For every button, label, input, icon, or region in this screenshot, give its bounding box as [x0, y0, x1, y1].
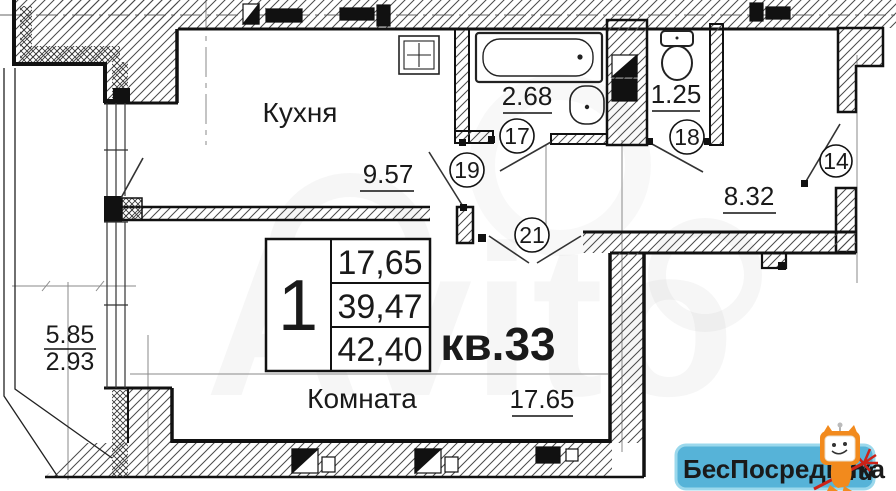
- marker: [766, 7, 790, 19]
- room-label: Комната: [307, 383, 417, 414]
- marker: [340, 8, 374, 20]
- wall-room-left: [128, 388, 172, 443]
- summary-table: 1 17,65 39,47 42,40: [266, 239, 430, 371]
- marker: [536, 447, 578, 463]
- wc-dim: 1.25: [651, 79, 702, 109]
- hall-dim: 8.32: [724, 181, 775, 211]
- kitchen-window: [104, 103, 128, 196]
- wall-bathroom-left: [455, 29, 469, 143]
- marker: [612, 55, 637, 77]
- door-tag-14: 14: [823, 148, 849, 174]
- door-tag-17: 17: [504, 123, 530, 149]
- floor-plan: Avito: [0, 0, 896, 491]
- wall-room-right: [610, 253, 644, 443]
- wall-hall-bottom: [583, 232, 856, 253]
- marker: [377, 5, 390, 26]
- marker: [750, 3, 763, 21]
- balcony-dim-length: 5.85: [46, 321, 95, 349]
- wall-kitchen-room-divider: [122, 207, 430, 220]
- marker: [266, 9, 302, 22]
- summary-total-area: 42,40: [337, 331, 422, 369]
- marker: [243, 4, 259, 24]
- windows: [104, 103, 128, 388]
- summary-subtotal-area: 39,47: [337, 288, 422, 326]
- bathroom-dim: 2.68: [502, 81, 553, 111]
- kitchen-dim: 9.57: [363, 159, 414, 189]
- wall-step-block: [457, 207, 473, 243]
- balcony-dim-width: 2.93: [46, 348, 95, 376]
- floor-plan-screenshot: Avito: [0, 0, 896, 491]
- summary-rooms-count: 1: [278, 266, 318, 346]
- apartment-number: кв.33: [440, 318, 555, 370]
- kitchen-label: Кухня: [263, 97, 338, 128]
- marker: [612, 79, 637, 101]
- balcony-door-jamb: [104, 196, 122, 222]
- summary-living-area: 17,65: [337, 244, 422, 282]
- room-dim: 17.65: [509, 384, 574, 414]
- door-tag-19: 19: [454, 157, 480, 183]
- wall-wc-right: [710, 24, 723, 145]
- door-tag-21: 21: [519, 222, 545, 248]
- door-tag-18: 18: [674, 124, 700, 150]
- room-window: [104, 222, 128, 388]
- wall-bathroom-bottom: [551, 134, 607, 144]
